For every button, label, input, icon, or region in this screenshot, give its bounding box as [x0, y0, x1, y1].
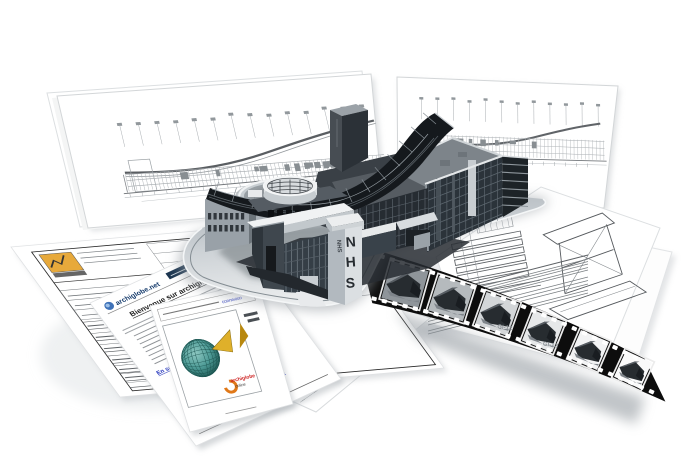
svg-text:H: H — [345, 253, 356, 270]
svg-text:NHS: NHS — [335, 240, 342, 253]
svg-text:S: S — [345, 274, 355, 291]
svg-text:N: N — [345, 233, 356, 250]
